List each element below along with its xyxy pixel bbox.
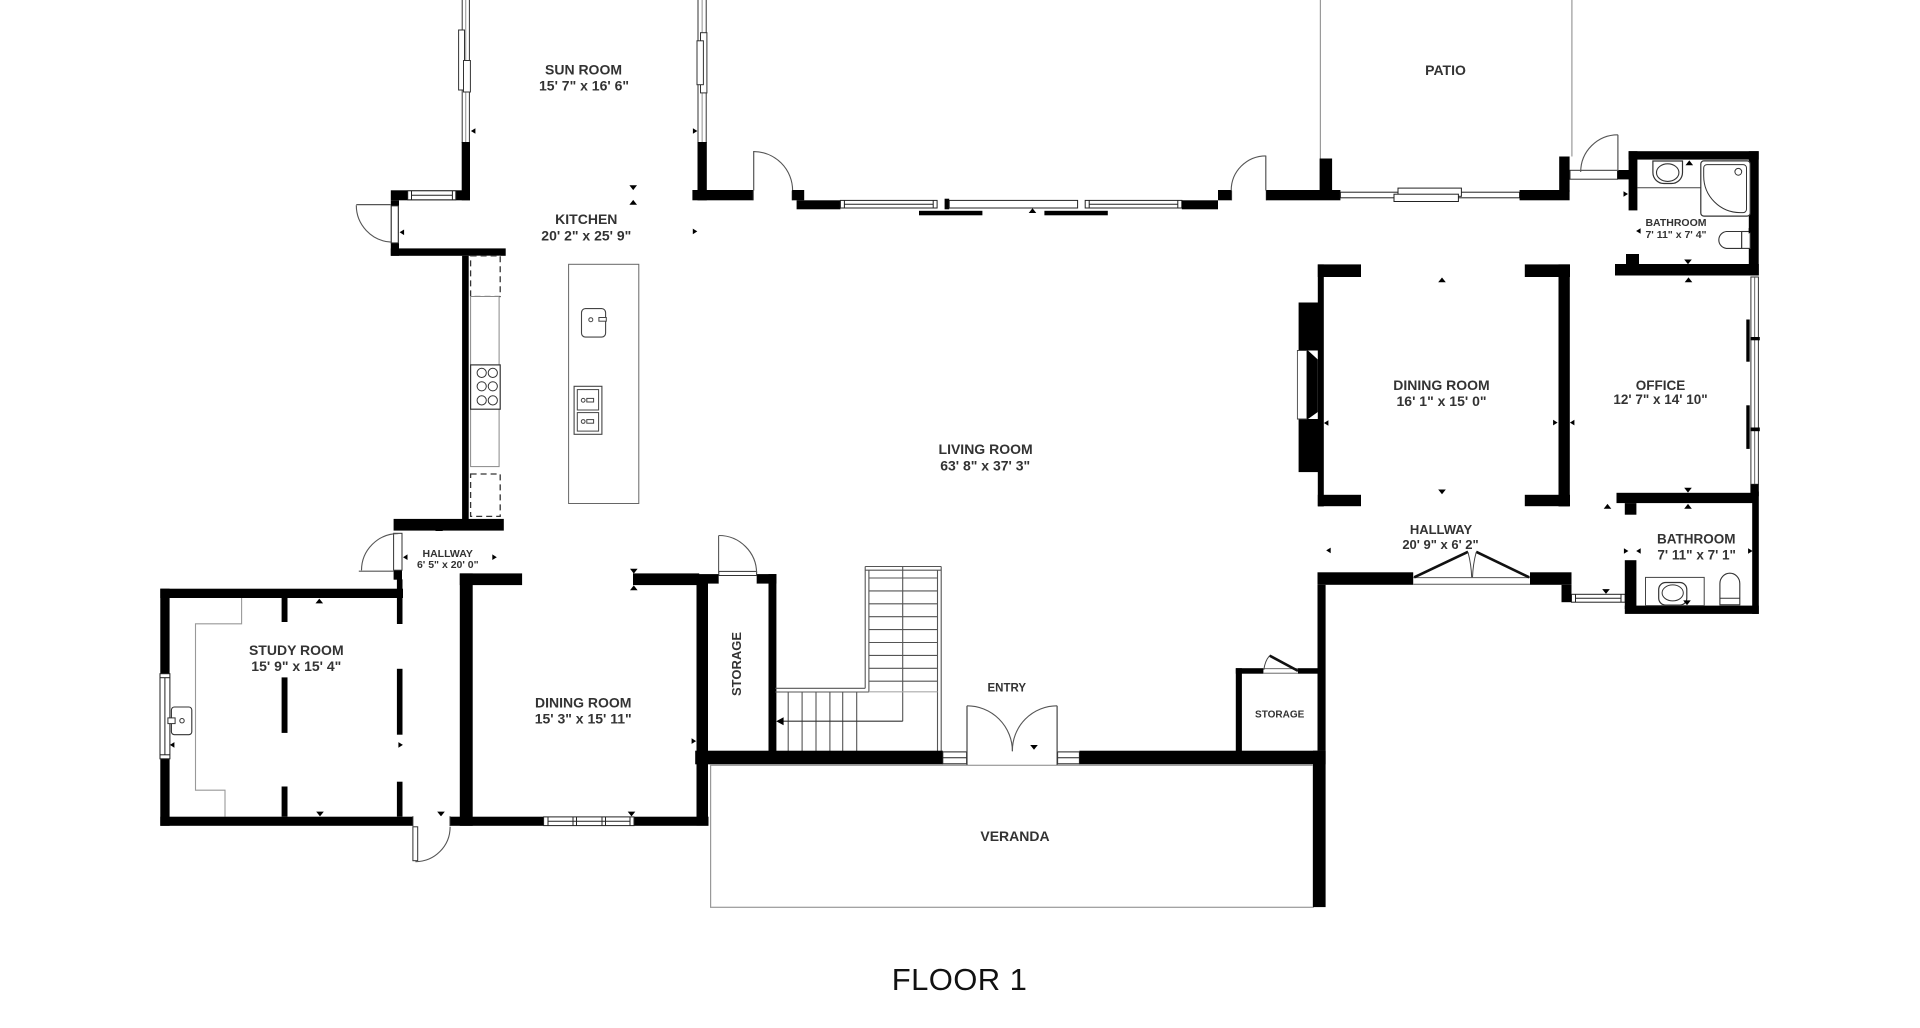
svg-text:PATIO: PATIO [1425, 62, 1466, 78]
svg-text:KITCHEN: KITCHEN [555, 211, 617, 227]
svg-text:20' 9" x 6' 2": 20' 9" x 6' 2" [1402, 537, 1478, 552]
svg-text:VERANDA: VERANDA [980, 828, 1049, 844]
svg-text:BATHROOM: BATHROOM [1657, 532, 1736, 547]
svg-text:DINING ROOM: DINING ROOM [535, 695, 631, 711]
svg-text:12' 7" x 14' 10": 12' 7" x 14' 10" [1613, 392, 1707, 407]
svg-text:15' 9" x 15' 4": 15' 9" x 15' 4" [251, 658, 341, 674]
svg-text:15' 7" x 16' 6": 15' 7" x 16' 6" [539, 78, 629, 94]
svg-text:HALLWAY: HALLWAY [1410, 522, 1473, 537]
svg-text:DINING ROOM: DINING ROOM [1393, 377, 1489, 393]
svg-text:15' 3" x 15' 11": 15' 3" x 15' 11" [535, 710, 632, 726]
svg-text:STORAGE: STORAGE [1255, 710, 1305, 721]
svg-text:7' 11" x 7' 1": 7' 11" x 7' 1" [1657, 548, 1736, 563]
svg-text:6' 5" x 20' 0": 6' 5" x 20' 0" [417, 559, 479, 571]
svg-text:16' 1" x 15' 0": 16' 1" x 15' 0" [1397, 393, 1487, 409]
svg-text:FLOOR 1: FLOOR 1 [892, 962, 1027, 997]
svg-text:OFFICE: OFFICE [1636, 378, 1686, 393]
svg-text:SUN ROOM: SUN ROOM [545, 62, 622, 78]
svg-text:ENTRY: ENTRY [988, 683, 1027, 695]
svg-text:7' 11" x 7' 4": 7' 11" x 7' 4" [1645, 229, 1706, 241]
svg-text:LIVING ROOM: LIVING ROOM [939, 441, 1033, 457]
svg-text:BATHROOM: BATHROOM [1645, 217, 1706, 229]
svg-text:20' 2" x 25' 9": 20' 2" x 25' 9" [541, 227, 631, 243]
svg-text:STUDY ROOM: STUDY ROOM [249, 642, 344, 658]
svg-text:STORAGE: STORAGE [729, 632, 744, 696]
svg-text:63' 8" x 37' 3": 63' 8" x 37' 3" [940, 458, 1030, 474]
